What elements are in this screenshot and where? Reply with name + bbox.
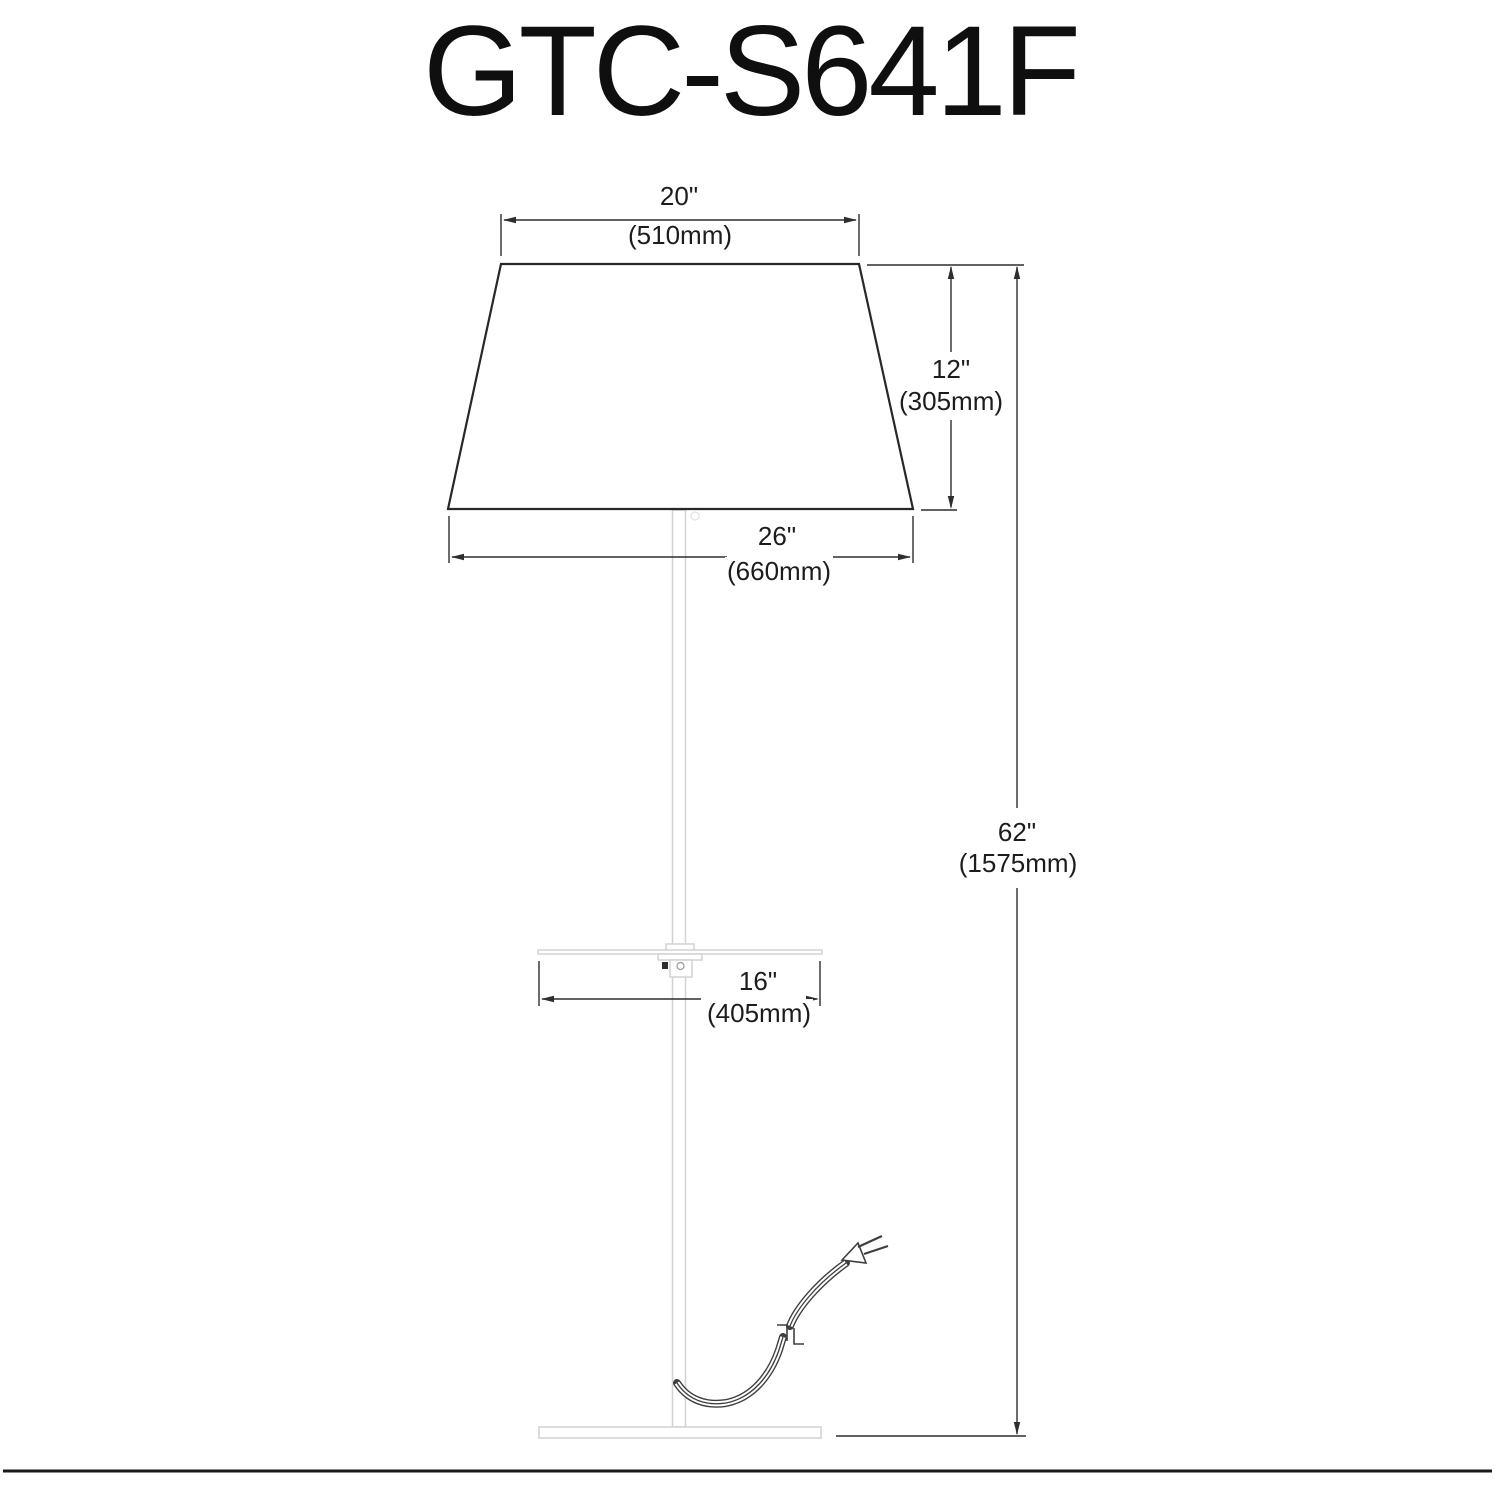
label-shade-bottom-inches: 26" <box>756 522 798 552</box>
finial-circle <box>691 512 699 520</box>
power-plug <box>842 1236 888 1263</box>
label-shade-height-inches: 12" <box>930 355 972 385</box>
label-shade-top-mm: (510mm) <box>626 221 734 251</box>
arrow-up <box>948 266 954 279</box>
arrow-up <box>1014 266 1020 279</box>
plug-prongs <box>858 1236 888 1254</box>
label-shade-height-mm: (305mm) <box>897 387 1005 417</box>
lamp-line-drawing <box>0 0 1500 1500</box>
shelf-bracket <box>658 954 702 960</box>
label-overall-height-mm: (1575mm) <box>957 849 1079 879</box>
power-cord <box>677 1236 888 1404</box>
lamp-shade <box>448 264 913 509</box>
label-shade-top-inches: 20" <box>658 182 700 212</box>
label-tray-width-mm: (405mm) <box>705 999 813 1029</box>
label-overall-height-inches: 62" <box>996 818 1038 848</box>
base-plate <box>539 1427 821 1438</box>
arrow-right <box>844 217 857 223</box>
arrow-left <box>451 554 464 560</box>
spec-sheet: GTC-S641F <box>0 0 1500 1500</box>
label-tray-width-inches: 16" <box>737 967 779 997</box>
label-shade-bottom-mm: (660mm) <box>725 557 833 587</box>
arrow-down <box>1014 1422 1020 1435</box>
arrow-left <box>541 996 554 1002</box>
arrow-left <box>503 217 516 223</box>
arrow-right <box>898 554 911 560</box>
switch-button <box>677 963 684 970</box>
switch-indicator <box>662 962 668 969</box>
arrow-down <box>948 496 954 509</box>
